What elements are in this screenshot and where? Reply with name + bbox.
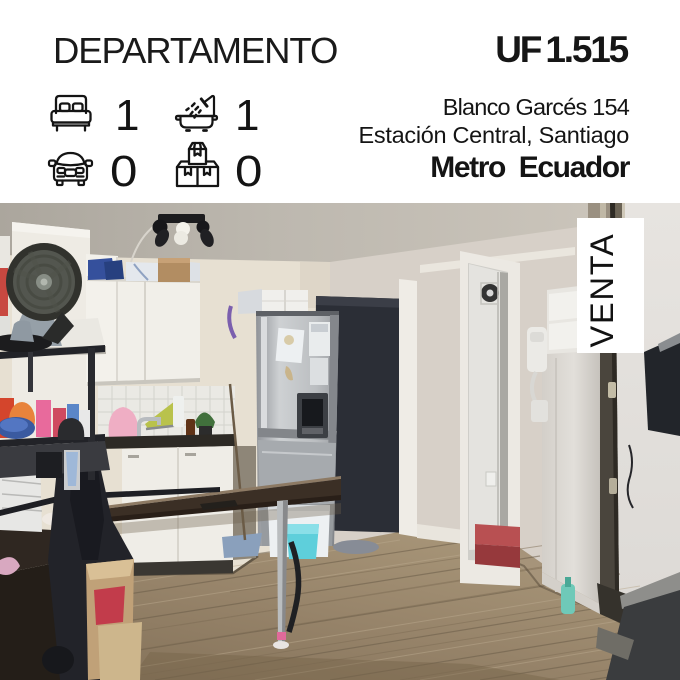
svg-text:VENTA: VENTA	[584, 233, 620, 348]
